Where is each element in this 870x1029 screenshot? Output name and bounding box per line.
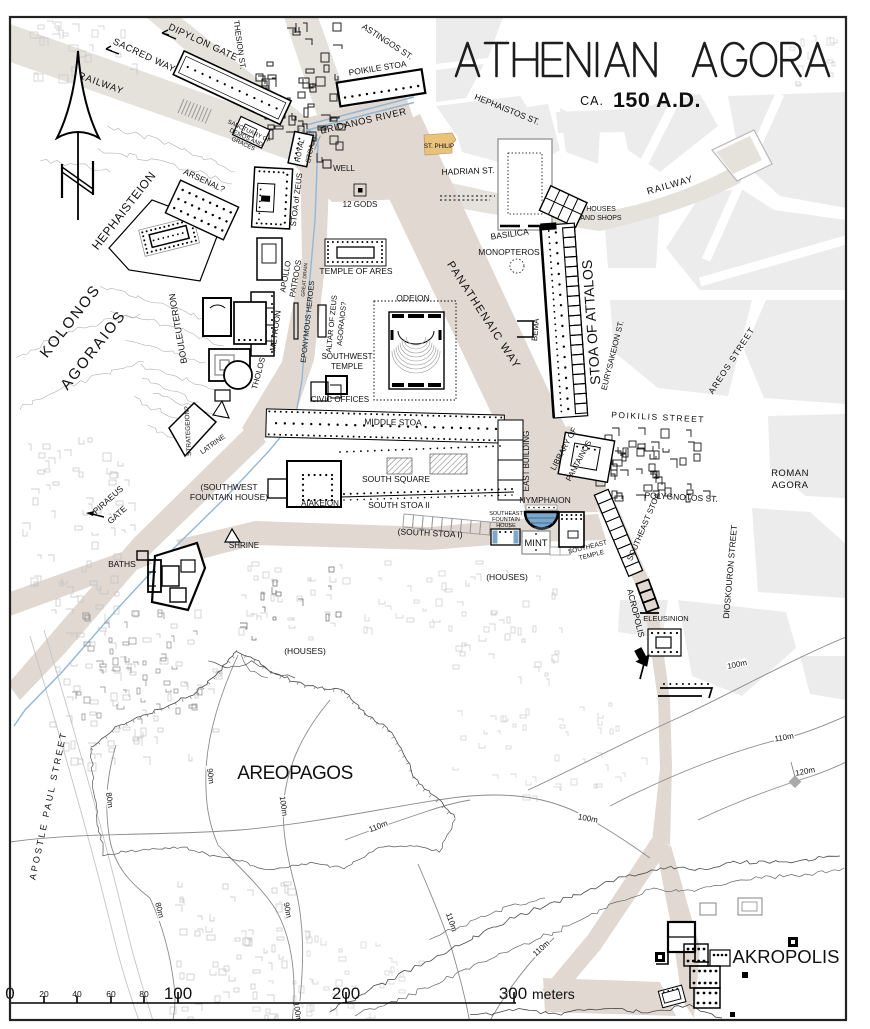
svg-text:meters: meters — [532, 986, 575, 1002]
svg-text:ODEION: ODEION — [396, 293, 430, 303]
svg-text:FOUNTAIN HOUSE): FOUNTAIN HOUSE) — [190, 492, 268, 502]
svg-text:MIDDLE STOA: MIDDLE STOA — [364, 416, 422, 427]
svg-text:80: 80 — [139, 989, 149, 999]
svg-text:AND SHOPS: AND SHOPS — [580, 215, 622, 222]
svg-text:AKROPOLIS: AKROPOLIS — [733, 946, 840, 967]
svg-text:ROMAN: ROMAN — [771, 468, 809, 479]
svg-text:(SOUTHWEST: (SOUTHWEST — [200, 482, 257, 492]
svg-text:AIAKEION: AIAKEION — [301, 499, 339, 508]
svg-text:HOUSES: HOUSES — [586, 206, 616, 213]
svg-text:EAST BUILDING: EAST BUILDING — [522, 431, 531, 492]
svg-text:40: 40 — [72, 989, 82, 999]
svg-text:CIVIC OFFICES: CIVIC OFFICES — [311, 395, 369, 404]
svg-text:12 GODS: 12 GODS — [343, 200, 378, 209]
svg-text:BATHS: BATHS — [108, 559, 136, 569]
svg-text:SOUTHWEST: SOUTHWEST — [321, 352, 372, 361]
svg-text:NYMPHAION: NYMPHAION — [519, 495, 570, 505]
svg-text:ST. PHILIP: ST. PHILIP — [424, 143, 454, 150]
svg-text:AGORA: AGORA — [772, 480, 809, 491]
svg-text:(HOUSES): (HOUSES) — [486, 572, 528, 582]
svg-text:TEMPLE: TEMPLE — [331, 362, 363, 371]
svg-text:SOUTH SQUARE: SOUTH SQUARE — [362, 474, 430, 484]
svg-text:MONOPTEROS: MONOPTEROS — [478, 247, 540, 257]
svg-text:TEMPLE OF ARES: TEMPLE OF ARES — [319, 266, 393, 276]
svg-text:SOUTH STOA II: SOUTH STOA II — [368, 500, 430, 510]
svg-text:HADRIAN ST.: HADRIAN ST. — [441, 165, 494, 177]
svg-text:HOUSE: HOUSE — [496, 523, 516, 529]
svg-text:AREOPAGOS: AREOPAGOS — [237, 763, 353, 784]
svg-text:MINT: MINT — [524, 538, 547, 549]
svg-text:150 A.D.: 150 A.D. — [613, 88, 701, 112]
svg-text:SHRINE: SHRINE — [229, 541, 259, 550]
svg-text:60: 60 — [106, 989, 116, 999]
svg-text:300: 300 — [499, 984, 527, 1003]
svg-text:ELEUSINION: ELEUSINION — [643, 614, 688, 623]
svg-text:200: 200 — [332, 984, 360, 1003]
svg-text:(HOUSES): (HOUSES) — [284, 646, 326, 656]
svg-text:100: 100 — [164, 984, 192, 1003]
svg-text:CA.: CA. — [580, 94, 604, 108]
svg-text:WELL: WELL — [333, 164, 355, 173]
svg-text:20: 20 — [39, 989, 49, 999]
